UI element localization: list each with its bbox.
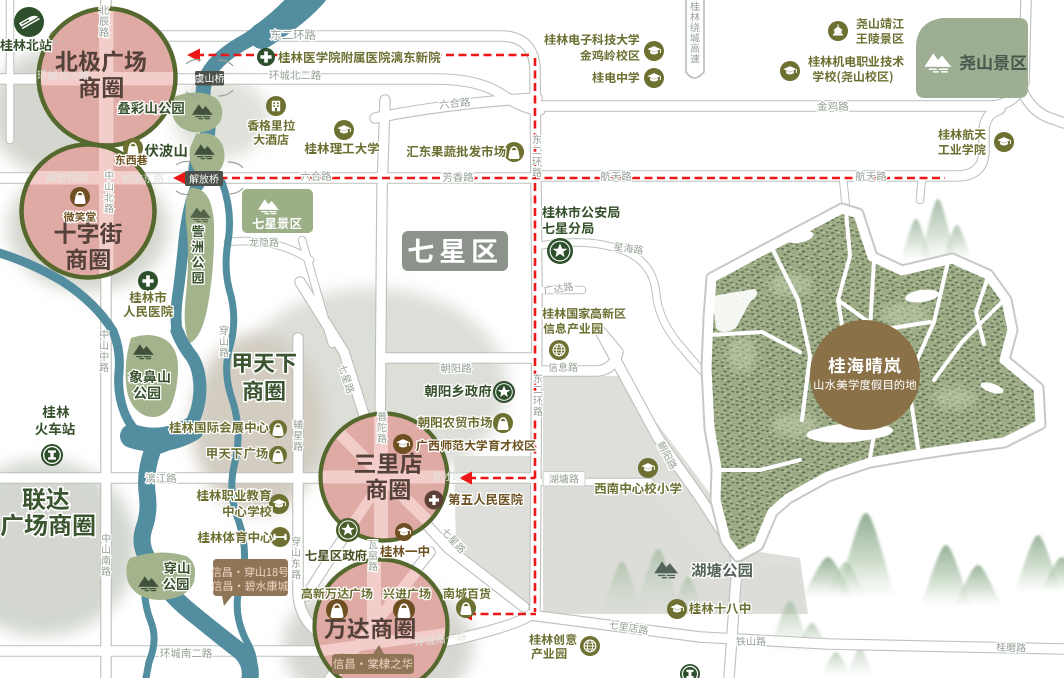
svg-text:中心学校: 中心学校 (222, 501, 273, 520)
svg-text:朝阳农贸市场: 朝阳农贸市场 (417, 412, 492, 431)
svg-text:訾洲公园: 訾洲公园 (191, 221, 204, 287)
svg-text:虞山桥: 虞山桥 (195, 70, 225, 85)
svg-text:航天路: 航天路 (855, 169, 887, 184)
svg-text:瓦窑路: 瓦窑路 (368, 536, 378, 573)
svg-text:第五人民医院: 第五人民医院 (448, 489, 524, 508)
svg-text:七星区: 七星区 (407, 230, 503, 269)
svg-text:东二环路: 东二环路 (270, 27, 316, 43)
svg-text:桂林电子科技大学: 桂林电子科技大学 (544, 31, 640, 48)
svg-text:金鸡路: 金鸡路 (817, 99, 849, 114)
svg-text:中山南路: 中山南路 (101, 530, 111, 578)
svg-text:学校(尧山校区): 学校(尧山校区) (812, 68, 893, 85)
svg-text:解放东路: 解放东路 (122, 171, 164, 186)
svg-text:朝阳乡政府: 朝阳乡政府 (424, 380, 492, 400)
svg-text:桂林绕城高速: 桂林绕城高速 (690, 0, 701, 66)
svg-text:桂林北站: 桂林北站 (0, 35, 52, 54)
svg-text:工业学院: 工业学院 (938, 141, 987, 158)
svg-text:信息路: 信息路 (548, 359, 578, 374)
svg-text:龙隐路: 龙隐路 (249, 234, 279, 249)
svg-text:芳香路: 芳香路 (442, 170, 474, 185)
svg-text:育才路: 育才路 (432, 468, 462, 483)
svg-text:桂电中学: 桂电中学 (592, 69, 640, 86)
svg-text:桂林国际会展中心: 桂林国际会展中心 (169, 417, 269, 436)
svg-text:万达商圈: 万达商圈 (324, 610, 416, 644)
svg-text:解放西路: 解放西路 (46, 170, 88, 185)
svg-text:大酒店: 大酒店 (253, 131, 289, 148)
svg-text:广场商圈: 广场商圈 (0, 506, 96, 541)
svg-text:汇东果蔬批发市场: 汇东果蔬批发市场 (406, 141, 506, 160)
svg-text:朝阳路: 朝阳路 (440, 361, 472, 376)
svg-text:广西师范大学育才校区: 广西师范大学育才校区 (416, 437, 536, 454)
svg-text:叠彩山公园: 叠彩山公园 (117, 97, 185, 117)
svg-text:王陵景区: 王陵景区 (856, 30, 904, 47)
svg-text:七星区政府: 七星区政府 (305, 545, 368, 564)
svg-text:东西巷: 东西巷 (115, 152, 148, 168)
svg-text:北辰路: 北辰路 (99, 3, 110, 40)
svg-text:金鸡岭校区: 金鸡岭校区 (580, 47, 640, 64)
svg-text:环城北二路: 环城北二路 (269, 68, 322, 83)
svg-text:伏波山: 伏波山 (144, 140, 188, 161)
svg-text:环城南二路: 环城南二路 (160, 646, 213, 661)
svg-text:信昌·棠棣之华: 信昌·棠棣之华 (333, 656, 414, 672)
svg-text:信息产业园: 信息产业园 (543, 320, 603, 337)
svg-text:七星景区: 七星景区 (252, 213, 302, 232)
svg-text:商圈: 商圈 (65, 241, 111, 275)
svg-text:环城北一路: 环城北一路 (37, 68, 90, 83)
svg-text:山水美学度假目的地: 山水美学度假目的地 (813, 377, 917, 393)
svg-text:西南中心校小学: 西南中心校小学 (594, 478, 682, 497)
svg-text:桂林医学院附属医院漓东新院: 桂林医学院附属医院漓东新院 (278, 47, 441, 66)
svg-text:七星分局: 七星分局 (542, 218, 594, 237)
svg-text:普陀路: 普陀路 (377, 408, 387, 445)
svg-text:航天路: 航天路 (600, 169, 632, 184)
svg-text:中山北路: 中山北路 (104, 167, 114, 215)
svg-text:信昌·碧水康城: 信昌·碧水康城 (212, 578, 289, 594)
svg-text:商圈: 商圈 (365, 471, 411, 505)
svg-text:商圈: 商圈 (242, 374, 286, 406)
svg-text:桂林理工大学: 桂林理工大学 (304, 138, 379, 157)
svg-text:铁山路: 铁山路 (736, 633, 766, 648)
svg-text:桂林体育中心: 桂林体育中心 (197, 527, 272, 546)
svg-text:桂林十八中: 桂林十八中 (689, 598, 752, 617)
svg-text:桂林一中: 桂林一中 (380, 541, 430, 560)
svg-text:穿山东路: 穿山东路 (291, 533, 301, 581)
svg-text:桂海晴岚: 桂海晴岚 (828, 353, 902, 378)
svg-text:湖塘公园: 湖塘公园 (691, 559, 753, 581)
svg-text:东二环路: 东二环路 (532, 131, 542, 179)
svg-text:穿山路: 穿山路 (219, 322, 229, 359)
svg-text:中山中路: 中山中路 (99, 326, 109, 374)
svg-text:六合路: 六合路 (300, 169, 332, 184)
svg-text:火车站: 火车站 (35, 418, 76, 438)
svg-text:尧山景区: 尧山景区 (959, 49, 1027, 74)
svg-text:湖塘路: 湖塘路 (549, 471, 579, 486)
svg-text:产业园: 产业园 (531, 645, 567, 662)
svg-text:桂磨路: 桂磨路 (996, 638, 1027, 654)
svg-text:解放桥: 解放桥 (189, 171, 219, 186)
svg-text:东二环路: 东二环路 (533, 370, 543, 418)
svg-text:人民医院: 人民医院 (123, 301, 174, 320)
svg-text:公园: 公园 (163, 573, 190, 593)
svg-text:辅星路: 辅星路 (293, 416, 303, 453)
svg-text:漓江路: 漓江路 (145, 471, 177, 486)
svg-text:公园: 公园 (133, 383, 161, 403)
svg-text:甲天下广场: 甲天下广场 (206, 443, 269, 462)
